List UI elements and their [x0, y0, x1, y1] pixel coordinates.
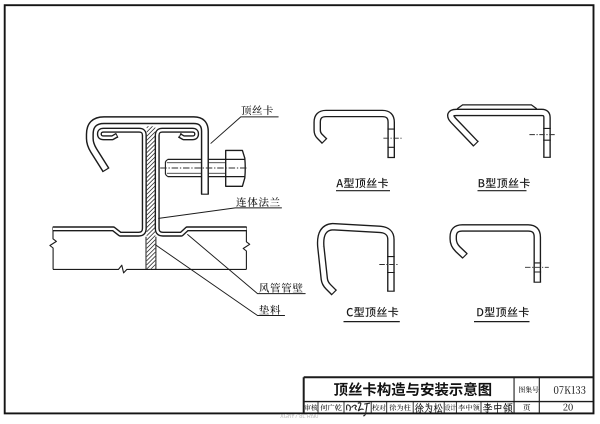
svg-text:XGnY7 8L RI90: XGnY7 8L RI90 — [280, 414, 318, 419]
